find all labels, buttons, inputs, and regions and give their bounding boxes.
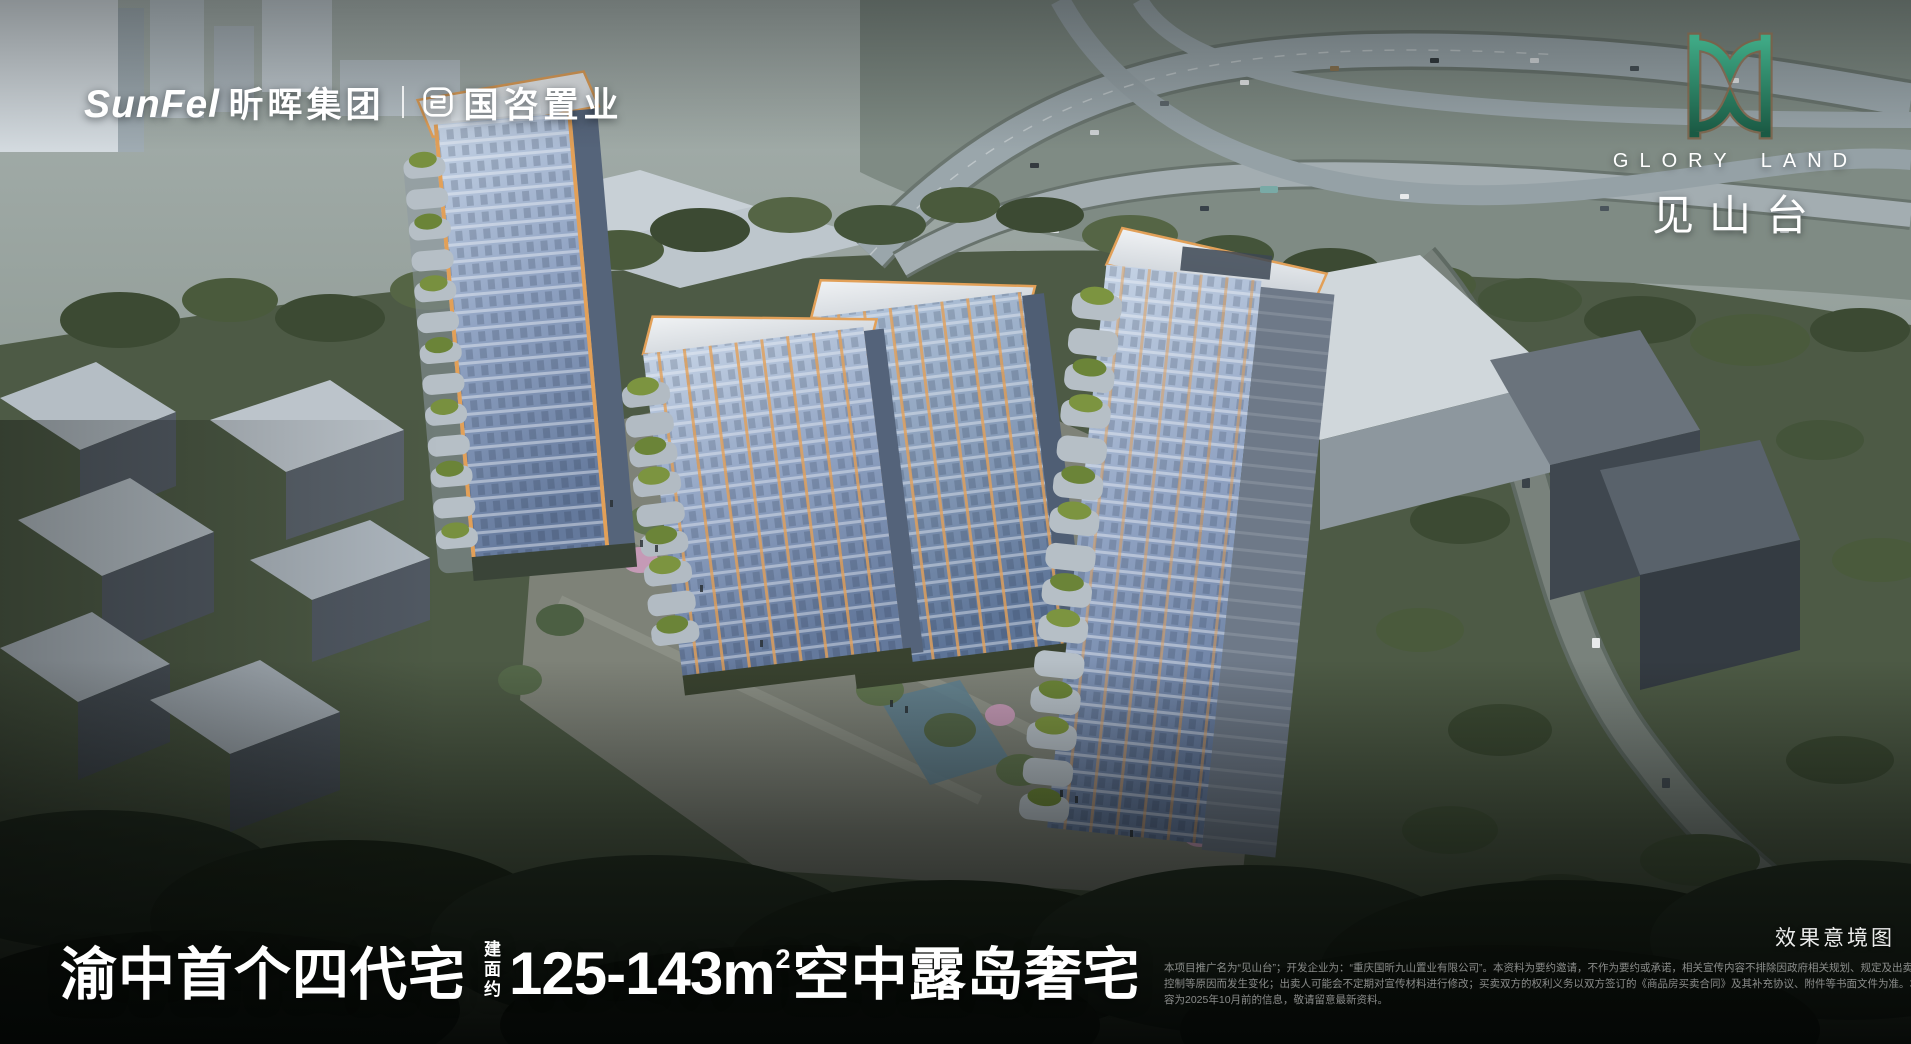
headline-area: 125-143m2空中露岛奢宅 [509, 929, 1141, 1011]
disclaimer-line-1: 本项目推广名为“见山台”；开发企业为：“重庆国昕九山置业有限公司”。本资料为要约… [1164, 960, 1906, 976]
property-ad-poster: SunFel 昕晖集团 国咨置业 GLORY LAN [0, 0, 1911, 1044]
project-brand: GLORY LAND 见山台 [1565, 32, 1895, 243]
glory-land-monogram-icon [1674, 32, 1786, 140]
marketing-headline: 渝中首个四代宅 建面约 125-143m2空中露岛奢宅 [60, 932, 1141, 1008]
brand-cjk-name: 见山台 [1637, 182, 1823, 243]
headline-prefix: 渝中首个四代宅 [60, 929, 466, 1011]
guozi-wordmark: 国咨置业 [463, 77, 623, 128]
sunfel-cjk-wordmark: 昕晖集团 [228, 86, 384, 125]
headline-area-label: 建面约 [482, 940, 499, 1000]
render-caption: 效果意境图 [1775, 922, 1895, 952]
legal-disclaimer: 本项目推广名为“见山台”；开发企业为：“重庆国昕九山置业有限公司”。本资料为要约… [1164, 960, 1906, 1008]
logo-divider [402, 86, 404, 118]
headline-suffix: 空中露岛奢宅 [793, 943, 1141, 1007]
sunfel-latin-wordmark: SunFel [84, 83, 220, 126]
headline-area-exponent: 2 [776, 944, 792, 974]
disclaimer-line-2: 控制等原因而发生变化；出卖人可能会不定期对宣传材料进行修改；买卖双方的权利义务以… [1164, 976, 1906, 992]
corporate-logos: SunFel 昕晖集团 国咨置业 [84, 80, 624, 124]
brand-latin-name: GLORY LAND [1602, 150, 1858, 173]
headline-area-value: 125-143m [509, 940, 775, 1007]
guozi-logo: 国咨置业 [422, 77, 623, 128]
sunfel-logo: SunFel 昕晖集团 [84, 77, 384, 128]
tower-middle-front [613, 289, 925, 699]
guozi-monogram-icon [422, 86, 454, 118]
disclaimer-line-3: 容为2025年10月前的信息，敬请留意最新资料。 [1164, 992, 1906, 1008]
